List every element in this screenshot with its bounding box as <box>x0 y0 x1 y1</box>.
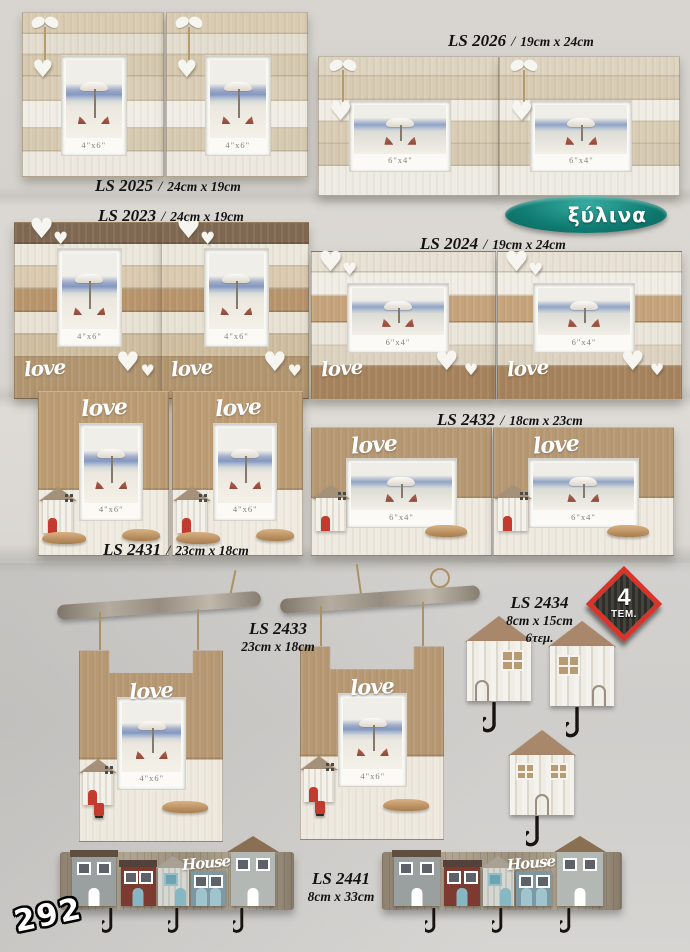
heart-icon: ♥ <box>528 262 543 279</box>
house-roof <box>227 836 279 852</box>
twine-string <box>356 564 362 596</box>
beach-photo <box>84 428 139 503</box>
house-window <box>557 655 580 676</box>
pack-badge: 4 ΤΕΜ. <box>592 572 656 636</box>
house-door <box>535 794 549 815</box>
photo-mat: 4"x6" <box>338 693 408 787</box>
house-door <box>48 518 57 533</box>
heart-icon: ♥ <box>510 99 533 125</box>
twine-string <box>197 609 199 652</box>
photo-size-caption: 4"x6" <box>224 329 249 342</box>
house-roof <box>300 756 338 770</box>
material-badge-label: ξύλινα <box>568 203 647 227</box>
house-ornament <box>177 487 207 533</box>
beach-photo <box>343 698 403 769</box>
house-body <box>510 755 574 815</box>
heart-icon: ♥ <box>288 363 302 379</box>
love-script: love <box>80 394 127 422</box>
beach-chairs-icon <box>76 116 112 124</box>
beach-photo <box>535 105 627 154</box>
twine-loop <box>430 568 450 588</box>
house-door <box>321 516 330 531</box>
house-window <box>536 875 550 888</box>
product-label-ls2434: LS 2434 8cm x 15cm 6τεμ. <box>492 594 587 645</box>
product-label-ls2441: LS 2441 8cm x 33cm <box>296 870 386 906</box>
house-window <box>447 871 461 884</box>
photo-mat: 4"x6" <box>57 248 121 348</box>
house-roof <box>119 860 157 867</box>
house-door <box>175 888 186 906</box>
beach-chairs-icon <box>355 748 391 756</box>
house-window <box>65 494 68 497</box>
house-door <box>574 888 585 906</box>
house-window <box>199 494 202 497</box>
product-label-ls2431: LS 2431/23cm x 18cm <box>103 540 249 560</box>
beach-photo <box>66 60 122 138</box>
bow-icon <box>31 15 59 31</box>
rack-house <box>444 866 480 906</box>
beach-chairs-icon <box>566 319 602 327</box>
photo-size-caption: 6"x4" <box>569 154 594 167</box>
house-roof <box>554 836 606 852</box>
house-window <box>464 871 478 884</box>
house-window <box>399 862 413 875</box>
product-label-ls2432: LS 2432/18cm x 23cm <box>437 410 583 430</box>
beach-chairs-icon <box>71 307 107 315</box>
heart-icon: ♥ <box>342 262 357 279</box>
house-door <box>133 888 144 906</box>
key-rack-ls2441: House <box>382 838 622 948</box>
photo-frame-ls2023: ♥ ♥ 4"x6" love ♥ ♥ <box>14 222 162 399</box>
product-label-ls2026: LS 2026/19cm x 24cm <box>448 31 594 51</box>
lantern-ornament <box>94 803 104 816</box>
beach-photo <box>62 253 116 330</box>
hanging-frame-ls2433: love 4"x6" <box>272 566 492 846</box>
house-ornament <box>83 759 113 805</box>
love-script: love <box>351 430 399 459</box>
photo-size-caption: 4"x6" <box>77 329 102 342</box>
house-roof <box>70 850 118 857</box>
beach-chairs-icon <box>220 116 256 124</box>
house-roof <box>79 759 117 773</box>
house-roof <box>39 487 77 501</box>
house-roof <box>443 860 482 867</box>
heart-icon: ♥ <box>176 57 198 81</box>
beach-chairs-icon <box>218 307 254 315</box>
house-roof <box>494 485 532 499</box>
love-script: love <box>129 676 174 703</box>
photo-mat: 6"x4" <box>346 458 457 528</box>
heart-icon: ♥ <box>650 362 664 378</box>
photo-frame-ls2431: love 4"x6" <box>172 391 303 556</box>
photo-frame-ls2433: love 4"x6" <box>79 650 223 842</box>
photo-frame-ls2026: ♥ 6"x4" <box>499 56 680 196</box>
driftwood-branch <box>280 585 481 614</box>
house-ornament <box>316 485 346 531</box>
photo-mat: 6"x4" <box>528 458 639 528</box>
house-window <box>516 763 535 780</box>
product-label-ls2433: LS 2433 23cm x 18cm <box>218 620 338 656</box>
house-window <box>583 858 597 871</box>
house-window <box>139 871 153 884</box>
key-rack-ls2441: House <box>60 838 294 948</box>
beach-photo <box>209 253 263 330</box>
product-label-ls2023: LS 2023/24cm x 19cm <box>98 206 244 226</box>
house-window <box>519 875 533 888</box>
house-window <box>520 492 523 495</box>
photo-frame-ls2024: ♥ ♥ 6"x4" love ♥ ♥ <box>497 251 682 400</box>
rack-house <box>557 852 603 906</box>
photo-frame-ls2025: ♥ 4"x6" <box>22 12 164 177</box>
umbrella-icon <box>75 274 103 309</box>
house-window <box>501 650 524 671</box>
heart-icon: ♥ <box>435 348 459 375</box>
product-label-ls2025: LS 2025/24cm x 19cm <box>95 176 241 196</box>
photo-frame-ls2023: ♥ ♥ 4"x6" love ♥ ♥ <box>161 222 309 399</box>
house-body <box>550 646 614 706</box>
bow-icon <box>175 15 203 31</box>
heart-icon: ♥ <box>329 99 352 125</box>
beach-chairs-icon <box>563 137 599 145</box>
photo-mat: 4"x6" <box>213 423 278 521</box>
heart-icon: ♥ <box>29 215 54 243</box>
photo-frame-ls2432: love 6"x4" <box>311 427 492 556</box>
photo-mat: 6"x4" <box>347 283 449 354</box>
material-badge: ξύλινα <box>505 196 667 233</box>
house-roof <box>312 485 350 499</box>
photo-frame-ls2026: ♥ 6"x4" <box>318 56 499 196</box>
photo-size-caption: 6"x4" <box>571 510 596 523</box>
heart-icon: ♥ <box>318 248 343 276</box>
house-window <box>549 763 568 780</box>
bow-icon <box>329 58 357 74</box>
photo-size-caption: 4"x6" <box>225 138 250 151</box>
love-script: love <box>214 394 261 422</box>
driftwood-ornament <box>607 525 649 537</box>
house-door <box>182 518 191 533</box>
house-roof <box>392 850 441 857</box>
house-window <box>488 873 502 886</box>
driftwood-ornament <box>425 525 467 537</box>
house-roof <box>173 487 211 501</box>
house-window <box>105 766 108 769</box>
beach-photo <box>351 463 452 510</box>
photo-size-caption: 4"x6" <box>139 772 164 785</box>
house-door <box>457 888 468 906</box>
beach-photo <box>210 60 266 138</box>
hook-icon <box>168 908 184 936</box>
catalog-page: ♥ 4"x6" ♥ 4"x6" LS 2025/24cm x 19cm LS 2… <box>0 0 690 952</box>
hook-icon <box>560 908 576 936</box>
umbrella-icon <box>224 82 252 118</box>
house-window <box>124 871 138 884</box>
hook-icon <box>233 908 249 936</box>
umbrella-icon <box>231 449 259 483</box>
love-script: love <box>506 355 549 382</box>
house-roof <box>508 730 576 756</box>
photo-mat: 4"x6" <box>205 55 271 156</box>
pack-badge-text: 4 ΤΕΜ. <box>592 572 656 636</box>
umbrella-icon <box>97 449 125 483</box>
beach-chairs-icon <box>380 319 416 327</box>
beach-chairs-icon <box>134 751 170 759</box>
photo-frame-ls2432: love 6"x4" <box>493 427 674 556</box>
beach-chairs-icon <box>565 494 601 502</box>
umbrella-icon <box>138 721 166 753</box>
love-script: love <box>350 673 395 700</box>
beach-photo <box>122 702 182 772</box>
house-window <box>209 875 223 888</box>
house-door <box>500 888 511 906</box>
driftwood-ornament <box>42 532 86 544</box>
photo-size-caption: 4"x6" <box>360 769 385 782</box>
house-ornament <box>43 487 73 533</box>
house-door <box>411 888 422 906</box>
beach-photo <box>218 428 273 503</box>
hanging-frame-ls2433: love 4"x6" <box>55 576 270 846</box>
hook-icon <box>102 908 118 936</box>
photo-size-caption: 4"x6" <box>81 138 106 151</box>
love-script: love <box>320 355 363 382</box>
photo-mat: 4"x6" <box>79 423 144 521</box>
driftwood-ornament <box>162 801 208 813</box>
love-script: love <box>23 355 66 382</box>
beach-chairs-icon <box>383 494 419 502</box>
house-window <box>236 858 250 871</box>
house-window <box>97 862 111 875</box>
heart-icon: ♥ <box>53 231 68 248</box>
photo-size-caption: 4"x6" <box>99 503 124 516</box>
rack-house <box>231 852 275 906</box>
photo-mat: 6"x4" <box>530 100 632 172</box>
beach-chairs-icon <box>227 481 263 489</box>
umbrella-icon <box>80 82 108 118</box>
beach-photo <box>533 463 634 510</box>
umbrella-icon <box>222 274 250 309</box>
photo-size-caption: 6"x4" <box>386 335 411 348</box>
hook-icon <box>483 702 503 736</box>
love-script: love <box>170 355 213 382</box>
heart-icon: ♥ <box>141 363 155 379</box>
product-label-ls2024: LS 2024/19cm x 24cm <box>420 234 566 254</box>
photo-frame-ls2433: love 4"x6" <box>300 646 444 840</box>
photo-size-caption: 4"x6" <box>233 503 258 516</box>
photo-frame-ls2024: ♥ ♥ 6"x4" love ♥ ♥ <box>311 251 496 400</box>
heart-icon: ♥ <box>263 349 287 376</box>
photo-mat: 4"x6" <box>117 697 187 790</box>
bow-icon <box>510 58 538 74</box>
house-window <box>563 858 577 871</box>
photo-mat: 6"x4" <box>533 283 635 354</box>
rack-house <box>516 871 552 906</box>
house-door <box>475 680 489 701</box>
house-door <box>521 888 532 906</box>
photo-mat: 4"x6" <box>204 248 268 348</box>
house-window <box>420 862 434 875</box>
beach-photo <box>354 105 446 154</box>
driftwood-branch <box>57 591 262 620</box>
house-ornament <box>304 756 334 802</box>
twine-string <box>99 612 101 652</box>
hook-icon <box>492 908 508 936</box>
beach-chairs-icon <box>93 481 129 489</box>
house-window <box>338 492 341 495</box>
heart-icon: ♥ <box>200 231 215 248</box>
house-door <box>210 888 221 906</box>
rack-house <box>121 866 156 906</box>
house-body <box>467 641 531 701</box>
rack-house <box>394 856 440 906</box>
house-door <box>536 888 547 906</box>
house-window <box>194 875 208 888</box>
photo-frame-ls2431: love 4"x6" <box>38 391 169 556</box>
heart-icon: ♥ <box>621 348 645 375</box>
lantern-ornament <box>315 801 325 814</box>
house-window <box>256 858 270 871</box>
twine-string <box>422 602 424 648</box>
photo-mat: 4"x6" <box>61 55 127 156</box>
heart-icon: ♥ <box>464 362 478 378</box>
house-door <box>196 888 207 906</box>
beach-photo <box>538 288 630 336</box>
umbrella-icon <box>359 718 387 751</box>
beach-photo <box>352 288 444 336</box>
driftwood-ornament <box>256 529 294 541</box>
photo-frame-ls2025: ♥ 4"x6" <box>166 12 308 177</box>
heart-icon: ♥ <box>116 349 140 376</box>
house-window <box>326 763 329 766</box>
house-door <box>503 516 512 531</box>
beach-chairs-icon <box>382 137 418 145</box>
driftwood-ornament <box>383 799 429 811</box>
photo-size-caption: 6"x4" <box>388 154 413 167</box>
house-window <box>77 862 91 875</box>
love-script: love <box>533 430 581 459</box>
house-door <box>88 888 99 906</box>
house-ornament <box>498 485 528 531</box>
photo-mat: 6"x4" <box>349 100 451 172</box>
rack-house <box>191 871 226 906</box>
photo-size-caption: 6"x4" <box>572 335 597 348</box>
hook-icon <box>425 908 441 936</box>
heart-icon: ♥ <box>32 57 54 81</box>
house-door <box>248 888 259 906</box>
house-window <box>164 873 178 886</box>
house-door <box>592 685 606 706</box>
photo-size-caption: 6"x4" <box>389 510 414 523</box>
